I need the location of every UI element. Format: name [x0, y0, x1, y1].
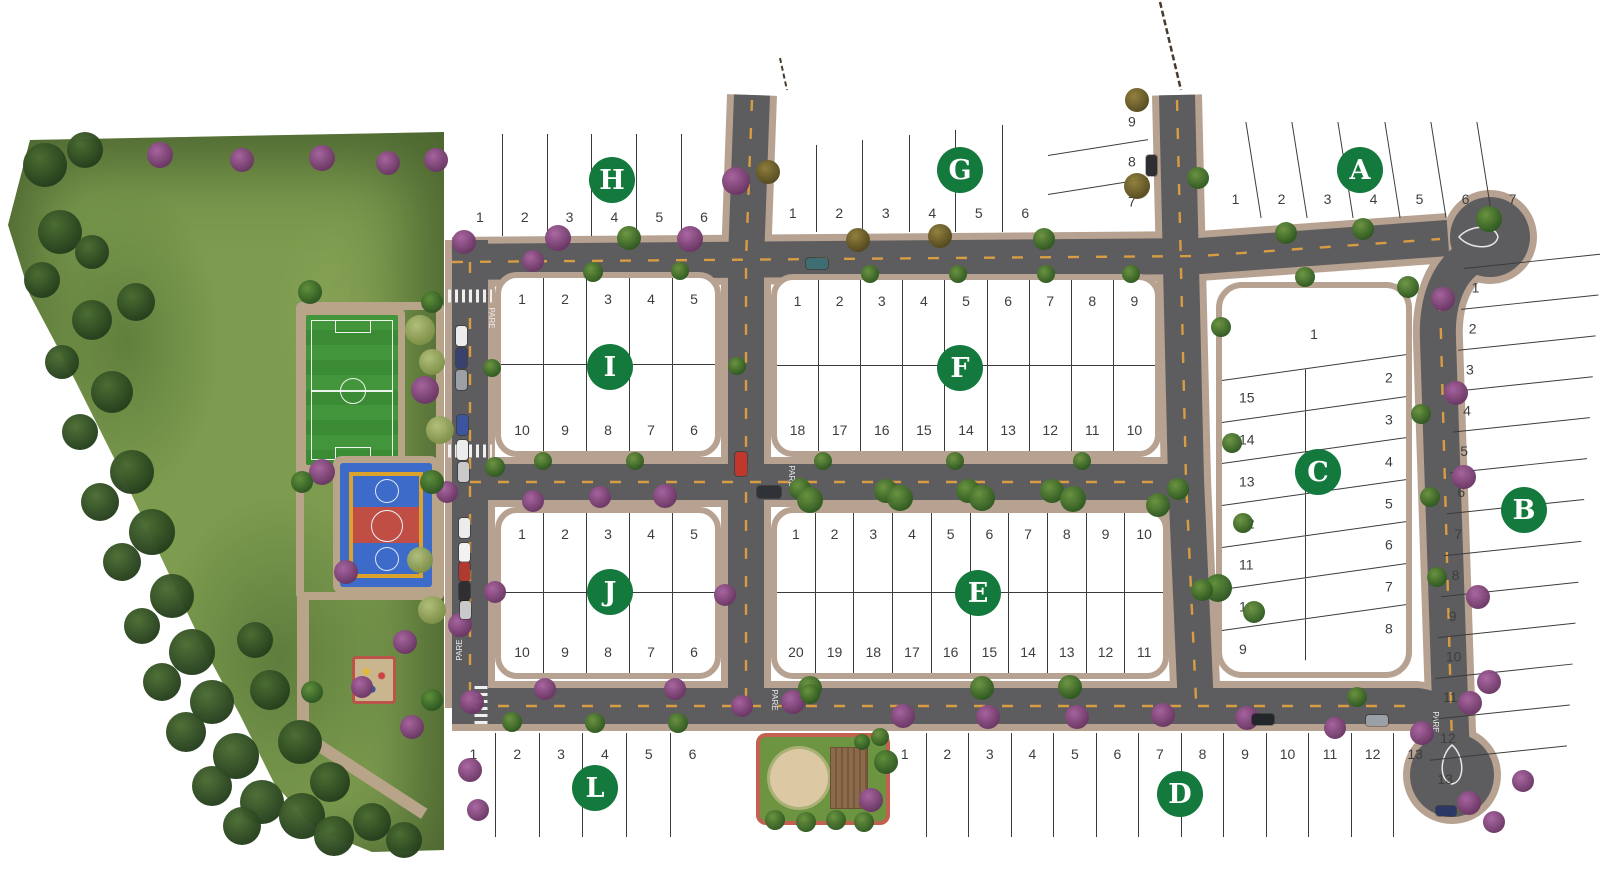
lot-number: 12	[1239, 515, 1255, 531]
lot-number: 6	[700, 209, 708, 225]
lot-number: 12	[1365, 746, 1381, 762]
pare-road-marking: PARE	[787, 465, 796, 486]
block-B: 12345678910111213	[1464, 268, 1600, 802]
lot-cell[interactable]: 16	[861, 366, 903, 452]
lot-cell[interactable]: 10	[1125, 513, 1163, 592]
lot-number: 6	[1462, 191, 1470, 207]
pare-road-marking: PARE	[455, 639, 464, 660]
lot-number: 10	[1280, 746, 1296, 762]
field-center-circle	[340, 378, 366, 404]
lot-number: 2	[943, 746, 951, 762]
lot-cell[interactable]: 5	[637, 134, 682, 236]
lot-cell[interactable]: 10	[1267, 733, 1310, 837]
lot-number: 3	[1385, 412, 1393, 428]
lot-number: 3	[557, 746, 565, 762]
lot-number: 4	[601, 746, 609, 762]
lot-number: 11	[1137, 644, 1152, 660]
plaza-deck	[830, 747, 868, 809]
lot-cell[interactable]: 5	[627, 733, 671, 837]
lot-number: 14	[1239, 432, 1255, 448]
lot-cell[interactable]: 18	[854, 593, 893, 673]
lot-number: 13	[1407, 746, 1423, 762]
lot-cell[interactable]: 7	[1009, 513, 1048, 592]
lot-cell[interactable]: 6	[988, 280, 1030, 365]
lot-number: 2	[1469, 321, 1477, 337]
lot-number: 12	[1098, 644, 1114, 660]
lot-number: 14	[1020, 644, 1036, 660]
lot-number: 7	[1024, 526, 1032, 542]
lot-number: 4	[1370, 191, 1378, 207]
lot-cell[interactable]: 20	[777, 593, 816, 673]
lot-number: 1	[518, 526, 526, 542]
lot-number: 6	[985, 526, 993, 542]
lot-cell[interactable]: 1	[458, 134, 503, 236]
lot-number: 9	[1102, 526, 1110, 542]
lot-cell[interactable]: 7	[630, 593, 673, 673]
lot-number: 1	[1472, 280, 1480, 296]
block-G-side-lots: 987	[1048, 116, 1148, 234]
lot-cell[interactable]: 12	[1087, 593, 1126, 673]
lot-number: 12	[1042, 422, 1058, 438]
lot-cell[interactable]: 7	[630, 365, 673, 452]
lot-cell[interactable]: 4	[903, 280, 945, 365]
block-badge-C: C	[1295, 449, 1341, 495]
subdivision-site-plan: PARE PARE PARE PARE PARE 123456 123456 9…	[0, 0, 1600, 884]
lot-number: 7	[647, 644, 655, 660]
lot-number: 7	[1508, 191, 1516, 207]
block-badge-F: F	[937, 345, 983, 391]
lot-number: 9	[1239, 641, 1247, 657]
goal-box	[335, 320, 371, 333]
playground	[352, 656, 396, 704]
lot-number: 5	[947, 526, 955, 542]
lot-cell[interactable]: 6	[682, 134, 726, 236]
lot-number: 4	[920, 293, 928, 309]
lot-number: 1	[1231, 191, 1239, 207]
soccer-field	[306, 315, 398, 465]
lot-number: 10	[514, 422, 530, 438]
lot-number: 3	[882, 205, 890, 221]
lot-cell[interactable]: 4	[1012, 733, 1055, 837]
lot-number: 8	[1088, 293, 1096, 309]
lot-cell[interactable]: 13	[1048, 593, 1087, 673]
lot-number: 3	[604, 291, 612, 307]
court-center-circle	[371, 510, 403, 542]
lot-cell[interactable]: 3	[861, 280, 903, 365]
lot-number: 4	[1028, 746, 1036, 762]
lot-number: 2	[835, 205, 843, 221]
block-badge-I: I	[587, 344, 633, 390]
lot-number: 1	[470, 746, 478, 762]
lot-number: 9	[1449, 607, 1457, 623]
lot-number: 4	[1463, 403, 1471, 419]
lot-number: 6	[689, 746, 697, 762]
lot-cell[interactable]: 3	[969, 733, 1012, 837]
lot-cell[interactable]: 1	[501, 278, 544, 364]
lot-cell[interactable]: 12	[1352, 733, 1395, 837]
lot-number: 8	[604, 644, 612, 660]
lot-number: 2	[1277, 191, 1285, 207]
lot-number: 13	[1437, 771, 1453, 787]
lot-cell[interactable]: 2	[927, 733, 970, 837]
lot-number: 13	[1239, 473, 1255, 489]
lot-number: 9	[1128, 114, 1136, 130]
lot-number: 5	[690, 526, 698, 542]
lot-number: 3	[604, 526, 612, 542]
lot-number: 4	[647, 526, 655, 542]
lot-number: 19	[827, 644, 843, 660]
lot-cell[interactable]: 10	[501, 593, 544, 673]
lot-number: 3	[1466, 362, 1474, 378]
lot-number: 8	[604, 422, 612, 438]
lot-number: 7	[647, 422, 655, 438]
lot-number: 3	[566, 209, 574, 225]
lot-number: 6	[1114, 746, 1122, 762]
lot-cell[interactable]: 2	[544, 278, 587, 364]
lot-cell[interactable]: 2	[503, 134, 548, 236]
pocket-park-plaza	[756, 733, 890, 825]
lot-cell[interactable]: 1	[884, 733, 927, 837]
lot-number: 3	[869, 526, 877, 542]
lot-number: 10	[1239, 598, 1255, 614]
lot-number: 9	[1241, 746, 1249, 762]
lot-cell[interactable]: 14	[1009, 593, 1048, 673]
court-key-circle	[375, 479, 399, 503]
lot-number: 16	[874, 422, 890, 438]
block-badge-H: H	[589, 157, 635, 203]
lot-cell[interactable]: 9	[1087, 513, 1126, 592]
lot-cell[interactable]: 1	[777, 513, 816, 592]
lot-number: 13	[1000, 422, 1016, 438]
lot-cell[interactable]: 17	[819, 366, 861, 452]
block-badge-E: E	[955, 570, 1001, 616]
lot-number: 17	[904, 644, 920, 660]
lot-number: 2	[1385, 370, 1393, 386]
lot-number: 7	[1046, 293, 1054, 309]
lot-number: 5	[1385, 495, 1393, 511]
multi-sport-court	[340, 463, 432, 587]
lot-number: 6	[1021, 205, 1029, 221]
court-key-circle	[375, 547, 399, 571]
lot-number: 8	[1385, 620, 1393, 636]
lot-cell[interactable]: 4	[630, 278, 673, 364]
lot-cell[interactable]: 2	[819, 280, 861, 365]
lot-cell[interactable]: 2	[496, 733, 540, 837]
lot-number: 5	[645, 746, 653, 762]
lot-cell[interactable]: 5	[673, 513, 715, 592]
lot-number: 4	[647, 291, 655, 307]
lot-number: 6	[1385, 537, 1393, 553]
lot-number: 5	[1071, 746, 1079, 762]
lot-cell[interactable]: 2	[544, 513, 587, 592]
lot-number: 2	[831, 526, 839, 542]
lot-number: 11	[1443, 689, 1458, 705]
lot-cell[interactable]: 3	[854, 513, 893, 592]
lot-cell[interactable]: 9	[1224, 733, 1267, 837]
lot-cell[interactable]: 13	[988, 366, 1030, 452]
lot-cell[interactable]: 1	[501, 513, 544, 592]
lot-number: 15	[982, 644, 998, 660]
lot-number: 1	[901, 746, 909, 762]
lot-number: 3	[986, 746, 994, 762]
lot-cell[interactable]: 4	[893, 513, 932, 592]
lot-number: 9	[561, 422, 569, 438]
lot-cell[interactable]: 6	[673, 365, 715, 452]
lot-number: 7	[1454, 525, 1462, 541]
lot-number: 4	[1385, 453, 1393, 469]
lot-number: 7	[1156, 746, 1164, 762]
lot-cell[interactable]: 5	[673, 278, 715, 364]
lot-cell[interactable]: 6	[1097, 733, 1140, 837]
lot-number: 11	[1239, 557, 1254, 573]
lot-cell[interactable]: 9	[1114, 280, 1155, 365]
lot-cell[interactable]: 2	[816, 513, 855, 592]
lot-number: 5	[975, 205, 983, 221]
lot-number: 7	[1128, 193, 1136, 209]
lot-number: 5	[962, 293, 970, 309]
lot-number: 1	[794, 293, 802, 309]
lot-number: 6	[690, 644, 698, 660]
lot-number: 9	[1131, 293, 1139, 309]
lot-number: 1	[1310, 326, 1318, 342]
lot-number: 5	[1416, 191, 1424, 207]
lot-number: 2	[521, 209, 529, 225]
block-badge-B: B	[1501, 487, 1547, 533]
lot-number: 2	[561, 526, 569, 542]
lot-number: 1	[476, 209, 484, 225]
lot-number: 6	[690, 422, 698, 438]
lot-number: 13	[1059, 644, 1075, 660]
block-badge-D: D	[1157, 771, 1203, 817]
lot-number: 14	[958, 422, 974, 438]
lot-cell[interactable]: 9	[1222, 620, 1305, 672]
lot-cell[interactable]: 19	[816, 593, 855, 673]
lot-cell[interactable]: 1	[777, 280, 819, 365]
lot-number: 9	[561, 644, 569, 660]
lot-number: 3	[878, 293, 886, 309]
boundary-line	[780, 2, 1181, 90]
lot-number: 4	[611, 209, 619, 225]
lot-number: 2	[513, 746, 521, 762]
lot-number: 15	[1239, 390, 1255, 406]
lot-number: 5	[655, 209, 663, 225]
lot-number: 8	[1063, 526, 1071, 542]
lot-cell[interactable]: 5	[1054, 733, 1097, 837]
lot-cell[interactable]: 7	[1030, 280, 1072, 365]
lot-number: 1	[792, 526, 800, 542]
lot-cell[interactable]: 3	[548, 134, 593, 236]
lot-number: 5	[1460, 444, 1468, 460]
lot-number: 16	[943, 644, 959, 660]
lot-cell[interactable]: 9	[544, 593, 587, 673]
lot-cell[interactable]: 10	[501, 365, 544, 452]
lot-number: 6	[1004, 293, 1012, 309]
block-badge-A: A	[1337, 147, 1383, 193]
lot-number: 4	[928, 205, 936, 221]
lot-number: 8	[1199, 746, 1207, 762]
lot-cell[interactable]: 17	[893, 593, 932, 673]
block-badge-G: G	[937, 147, 983, 193]
lot-cell[interactable]: 18	[777, 366, 819, 452]
lot-number: 8	[1452, 566, 1460, 582]
lot-number: 15	[916, 422, 932, 438]
park-walkway	[297, 598, 309, 732]
lot-cell[interactable]: 11	[1125, 593, 1163, 673]
lot-number: 1	[789, 205, 797, 221]
lot-number: 11	[1085, 422, 1100, 438]
lot-number: 8	[1128, 154, 1136, 170]
lot-number: 2	[561, 291, 569, 307]
lot-cell[interactable]: 13	[1394, 733, 1436, 837]
block-badge-J: J	[587, 569, 633, 615]
lot-cell[interactable]: 11	[1309, 733, 1352, 837]
lot-cell[interactable]: 12	[1030, 366, 1072, 452]
lot-number: 10	[1446, 648, 1462, 664]
lot-number: 1	[518, 291, 526, 307]
lot-cell[interactable]: 6	[671, 733, 714, 837]
lot-cell[interactable]: 10	[1114, 366, 1155, 452]
lot-number: 6	[1457, 485, 1465, 501]
lot-number: 20	[788, 644, 804, 660]
lot-number: 18	[790, 422, 806, 438]
lot-cell[interactable]: 6	[1003, 116, 1049, 232]
pare-road-marking: PARE	[770, 689, 779, 710]
lot-number: 7	[1385, 578, 1393, 594]
plaza-circle	[770, 749, 828, 807]
lot-number: 17	[832, 422, 848, 438]
lot-number: 2	[836, 293, 844, 309]
lot-number: 4	[908, 526, 916, 542]
block-badge-L: L	[572, 765, 618, 811]
lot-number: 3	[1324, 191, 1332, 207]
lot-number: 5	[690, 291, 698, 307]
lot-cell[interactable]: 1	[452, 733, 496, 837]
lot-cell[interactable]: 8	[1048, 513, 1087, 592]
lot-number: 10	[514, 644, 530, 660]
goal-box	[335, 447, 371, 460]
lot-number: 11	[1323, 746, 1338, 762]
lot-cell[interactable]: 9	[544, 365, 587, 452]
lot-cell[interactable]: 8	[1072, 280, 1114, 365]
lot-number: 18	[865, 644, 881, 660]
lot-number: 12	[1440, 730, 1456, 746]
lot-cell[interactable]: 6	[673, 593, 715, 673]
lot-cell[interactable]: 4	[630, 513, 673, 592]
lot-cell[interactable]: 11	[1072, 366, 1114, 452]
lot-number: 10	[1136, 526, 1152, 542]
lot-number: 10	[1127, 422, 1143, 438]
